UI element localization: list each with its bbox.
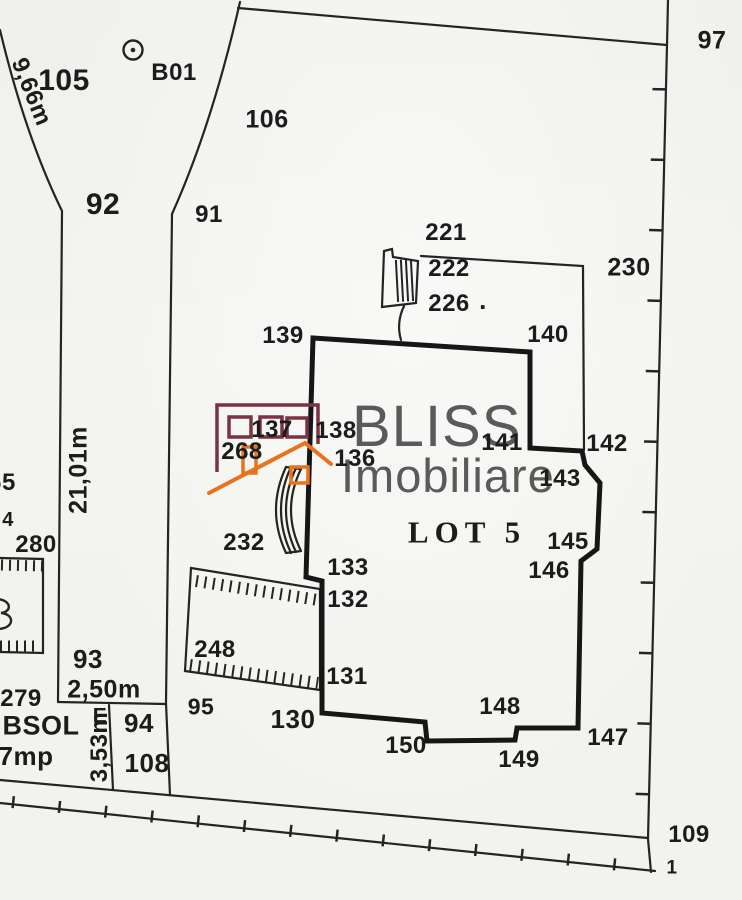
left-parcel-box [0, 558, 43, 653]
point-label-250m: 2,50m [67, 678, 140, 703]
point-label-150: 150 [385, 734, 427, 758]
stairs-hatch [396, 280, 415, 281]
point-label-145: 145 [547, 530, 589, 554]
point-label-92: 92 [86, 190, 120, 220]
point-label-280: 280 [15, 533, 57, 557]
point-label-130: 130 [271, 706, 316, 732]
point-label-91: 91 [195, 203, 223, 227]
point-label-B01: B01 [151, 61, 197, 85]
road-ticks [12, 802, 640, 867]
point-label-1: 1 [666, 859, 677, 878]
b01-point-dot [131, 48, 136, 53]
arcs-232 [276, 467, 301, 553]
top-boundary-line [238, 8, 667, 45]
quad-248-hatch-top [196, 581, 318, 600]
point-label-94: 94 [124, 710, 154, 736]
point-label-97: 97 [698, 29, 727, 54]
point-label-142: 142 [586, 432, 628, 456]
corridor-right-line [166, 2, 240, 795]
left-boundary-curve [0, 30, 62, 702]
point-label-65: 65 [0, 471, 16, 495]
point-label-143: 143 [539, 467, 581, 491]
point-label-226: 226 [428, 292, 470, 316]
point-label-131: 131 [326, 665, 368, 689]
point-label-106: 106 [245, 108, 288, 133]
road-lower-line [0, 803, 655, 871]
point-label-95: 95 [188, 696, 215, 719]
point-label-146: 146 [528, 559, 570, 583]
point-label-LOT5: LOT 5 [408, 517, 526, 548]
point-label-138: 138 [315, 419, 357, 443]
point-label-: . [479, 287, 487, 313]
point-label-140: 140 [527, 323, 569, 347]
point-label-149: 149 [498, 748, 540, 772]
point-label-133: 133 [327, 556, 369, 580]
point-label-141: 141 [481, 431, 523, 455]
point-label-222: 222 [428, 257, 470, 281]
point-label-268: 268 [221, 440, 263, 464]
point-label-353m: 3,53m [88, 712, 112, 783]
annex-curve [399, 306, 404, 340]
point-label-93: 93 [73, 646, 103, 672]
point-label-136: 136 [334, 447, 376, 471]
point-label-139: 139 [262, 324, 304, 348]
point-label-230: 230 [607, 256, 650, 281]
point-label-147: 147 [587, 726, 629, 750]
point-label-132: 132 [327, 588, 369, 612]
point-label-232: 232 [223, 531, 265, 555]
point-label-2101m: 21,01m [67, 426, 92, 514]
point-label-148: 148 [479, 695, 521, 719]
point-label-248: 248 [194, 638, 236, 662]
point-label-7mp: 7mp [0, 743, 53, 769]
point-label-BSOL: BSOL [2, 713, 79, 740]
road-upper-line [0, 780, 648, 838]
left-box-glyph [0, 599, 11, 629]
right-boundary-line [648, 0, 668, 872]
house-window-1 [229, 417, 251, 437]
point-label-108: 108 [125, 750, 170, 776]
cadastral-plan: BLISS Imobiliare 105B0110697929122122222… [0, 0, 742, 900]
point-label-109: 109 [668, 823, 710, 847]
point-label-221: 221 [425, 221, 467, 245]
point-label-279: 279 [0, 687, 42, 711]
left-box-hatch-top [1, 565, 43, 566]
point-label-4: 4 [2, 510, 14, 530]
